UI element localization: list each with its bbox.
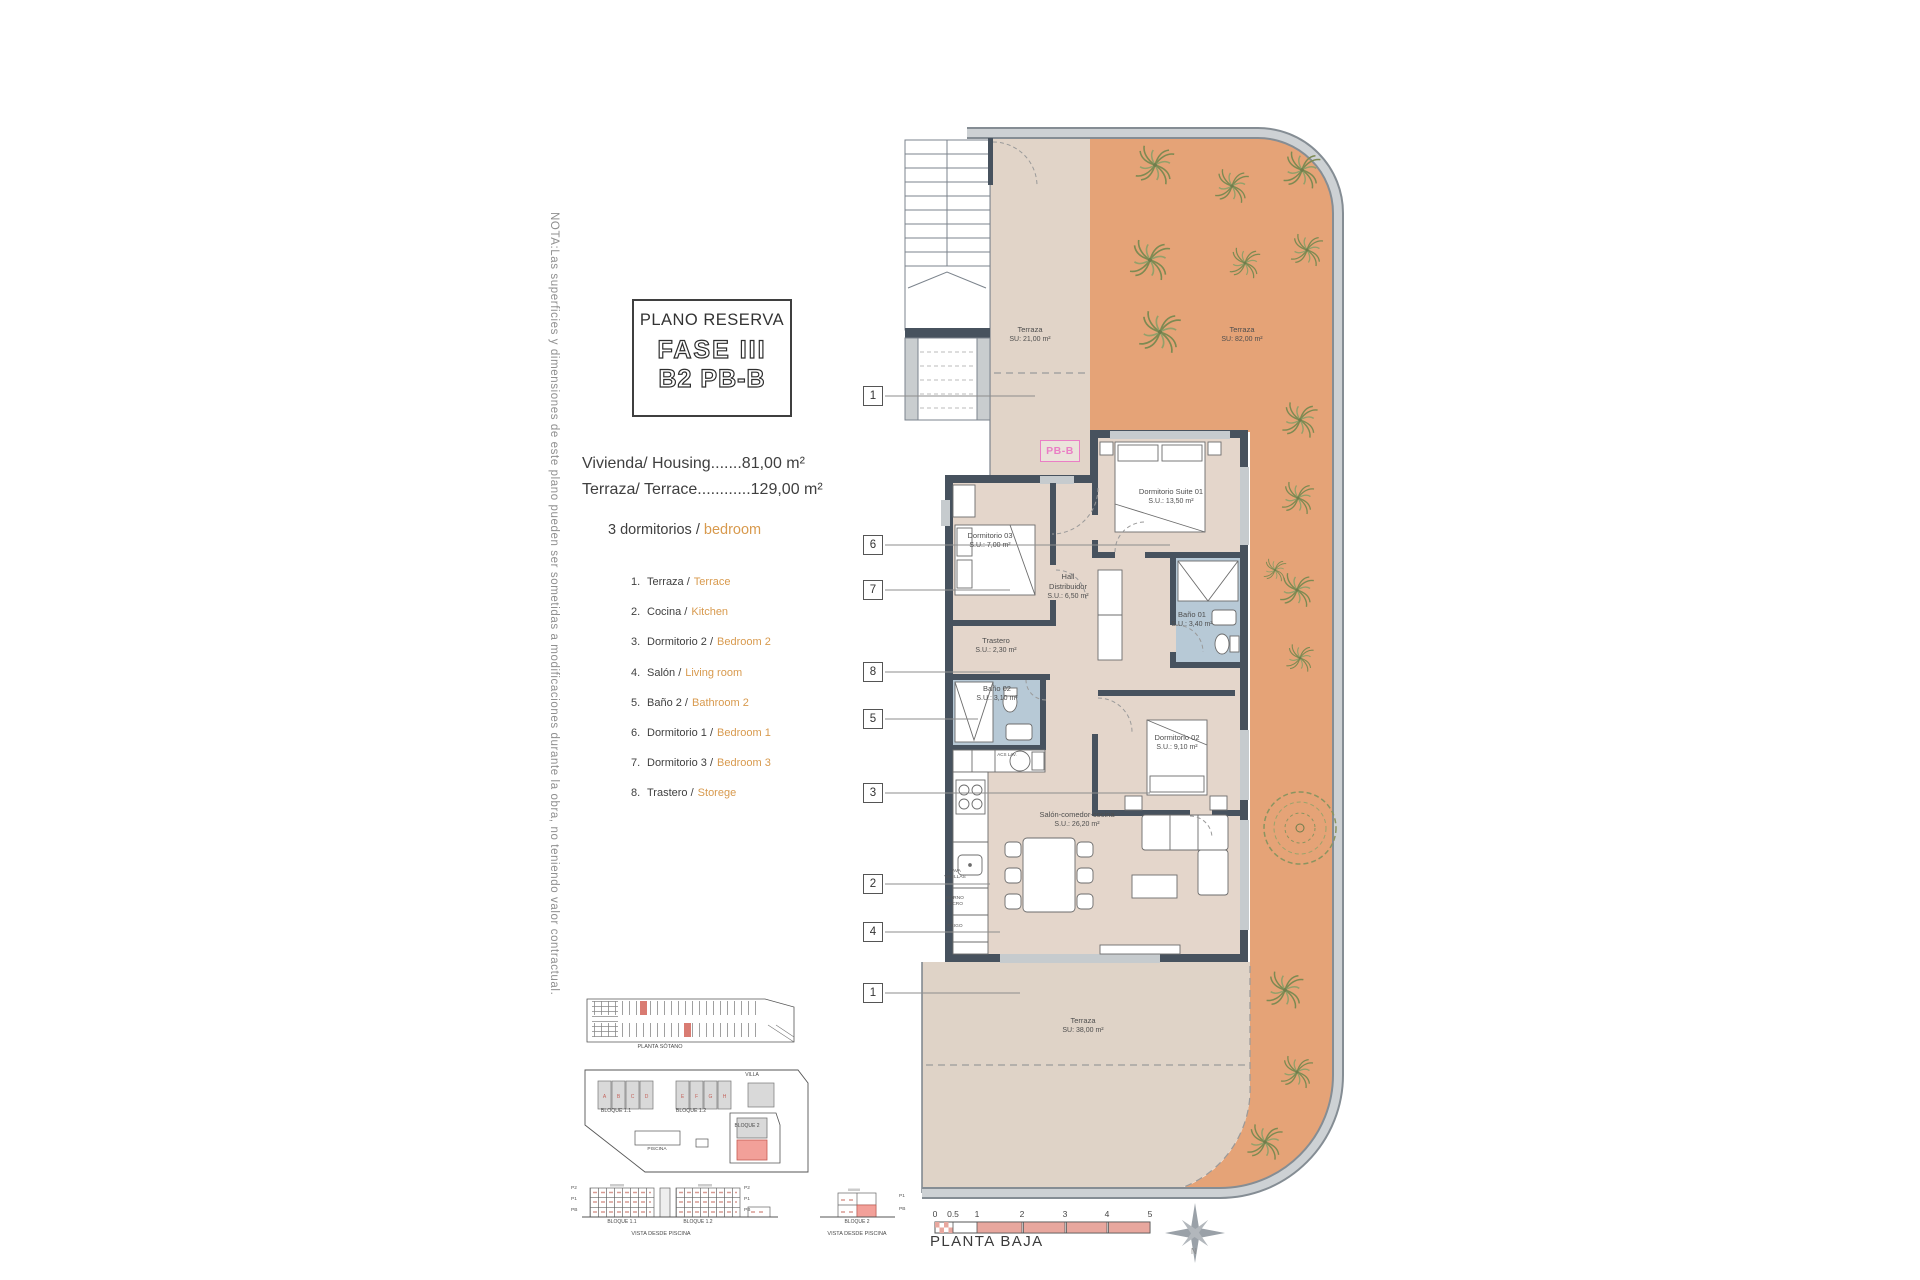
plan-tag-1b: 1 [863, 983, 883, 1003]
room-label-dorm03: Dormitorio 03S.U.: 7,00 m² [967, 531, 1012, 550]
room-label-salon: Salón-comedor-cocinaS.U.: 26,20 m² [1039, 810, 1114, 829]
north-label: N [1191, 1247, 1197, 1256]
scale-tick-05: 0.5 [947, 1209, 959, 1219]
terrace-area: Terraza/ Terrace............129,00 m² [582, 477, 823, 503]
terrace-38-region [922, 962, 1250, 1193]
scale-tick-2: 2 [1020, 1209, 1025, 1219]
svg-text:F: F [695, 1094, 698, 1100]
floor-plan-sheet: NOTA:Las superficies y dimensiones de es… [0, 0, 1920, 1280]
bedrooms-line: 3 dormitorios / bedroom [608, 522, 761, 538]
site-pool-label: PISCINA [647, 1147, 666, 1152]
kitchen-label-oven: HORNO MICRO [940, 896, 970, 907]
terrace-21-region [982, 133, 1090, 475]
plan-tag-6: 6 [863, 535, 883, 555]
site-bloque11-label: BLOQUE 1.1 [601, 1108, 631, 1114]
scale-tick-0: 0 [933, 1209, 938, 1219]
area-summary: Vivienda/ Housing.......81,00 m² Terraza… [582, 451, 823, 503]
legend-item: 1.Terraza /Terrace [631, 574, 771, 590]
floor-label-pb-b2: PB [899, 1207, 905, 1212]
plan-level-title: PLANTA BAJA [930, 1233, 1044, 1250]
plan-title: PLANO RESERVA [634, 311, 790, 330]
elevations [582, 1184, 895, 1217]
plan-tag-4: 4 [863, 922, 883, 942]
room-label-hall: HallDistribuidorS.U.: 6,50 m² [1047, 572, 1088, 601]
elev-view2-label: VISTA DESDE PISCINA [827, 1231, 886, 1237]
plan-tag-2: 2 [863, 874, 883, 894]
svg-text:D: D [645, 1094, 649, 1100]
basement-plan [587, 999, 794, 1042]
bloque2-site [730, 1113, 780, 1163]
kitchen-label-fridge: FRIGO [940, 924, 970, 930]
floor-plan-svg [860, 100, 1360, 1280]
legend-item: 6.Dormitorio 1 /Bedroom 1 [631, 725, 771, 741]
room-label-trastero: TrasteroS.U.: 2,30 m² [975, 636, 1016, 655]
bedrooms-en: bedroom [704, 522, 761, 538]
legend-item: 2.Cocina /Kitchen [631, 604, 771, 620]
legend-item: 5.Baño 2 /Bathroom 2 [631, 695, 771, 711]
room-label-terraza-82: TerrazaSU: 82,00 m² [1221, 325, 1262, 344]
legend-item: 8.Trastero /Storege [631, 785, 771, 801]
site-plan: A B C D E F G H [585, 1070, 808, 1172]
floor-label-p2-left: P2 [571, 1186, 577, 1191]
floor-label-p1-b2: P1 [899, 1194, 905, 1199]
floor-label-p1-right: P1 [744, 1197, 750, 1202]
floor-label-pb-left: PB [571, 1208, 577, 1213]
plan-tag-7: 7 [863, 580, 883, 600]
site-bloque12-label: BLOQUE 1.2 [676, 1108, 706, 1114]
legend-item: 4.Salón /Living room [631, 665, 771, 681]
room-label-suite: Dormitorio Suite 01S.U.: 13,50 m² [1139, 487, 1203, 506]
floor-label-p2-right: P2 [744, 1186, 750, 1191]
housing-area: Vivienda/ Housing.......81,00 m² [582, 451, 823, 477]
elev-view-label: VISTA DESDE PISCINA [631, 1231, 690, 1237]
scale-tick-4: 4 [1105, 1209, 1110, 1219]
bedrooms-es: 3 dormitorios / [608, 522, 700, 538]
elev-bloque11-label: BLOQUE 1.1 [607, 1219, 636, 1225]
legend-item: 7.Dormitorio 3 /Bedroom 3 [631, 755, 771, 771]
title-box: PLANO RESERVA FASE III B2 PB-B [632, 299, 792, 417]
site-bloque2-label: BLOQUE 2 [734, 1123, 759, 1129]
room-legend: 1.Terraza /Terrace 2.Cocina /Kitchen 3.D… [631, 574, 771, 816]
unit-tag-badge: PB-B [1040, 440, 1080, 462]
unit-title: B2 PB-B [634, 365, 790, 394]
plan-tag-5: 5 [863, 709, 883, 729]
room-label-dorm02: Dormitorio 02S.U.: 9,10 m² [1154, 733, 1199, 752]
scale-tick-1: 1 [975, 1209, 980, 1219]
scale-bar [935, 1222, 1150, 1233]
plan-tag-8: 8 [863, 662, 883, 682]
floor-label-p1-left: P1 [571, 1197, 577, 1202]
kitchen-label-acs: ACS LAV. [997, 752, 1017, 757]
phase-title: FASE III [634, 336, 790, 365]
plan-tag-3: 3 [863, 783, 883, 803]
disclaimer-note: NOTA:Las superficies y dimensiones de es… [548, 212, 560, 1112]
room-label-bano01: Baño 01S.U.: 3,40 m² [1171, 610, 1212, 629]
scale-tick-5: 5 [1148, 1209, 1153, 1219]
svg-text:H: H [723, 1094, 727, 1100]
scale-tick-3: 3 [1063, 1209, 1068, 1219]
room-label-bano02: Baño 02S.U.: 3,10 m² [976, 684, 1017, 703]
floor-label-pb-right: PB [744, 1208, 750, 1213]
kitchen-label-dishwasher: LAVA VAJILLAS [940, 869, 970, 880]
room-label-terraza-38: TerrazaSU: 38,00 m² [1062, 1016, 1103, 1035]
site-villa-label: VILLA [745, 1072, 759, 1078]
elev-bloque2-label: BLOQUE 2 [844, 1219, 869, 1225]
room-label-terraza-21: TerrazaSU: 21,00 m² [1009, 325, 1050, 344]
svg-text:G: G [709, 1094, 713, 1100]
svg-text:C: C [631, 1094, 635, 1100]
plan-tag-1: 1 [863, 386, 883, 406]
legend-item: 3.Dormitorio 2 /Bedroom 2 [631, 634, 771, 650]
basement-title: PLANTA SÓTANO [637, 1044, 682, 1050]
elev-bloque12-label: BLOQUE 1.2 [683, 1219, 712, 1225]
